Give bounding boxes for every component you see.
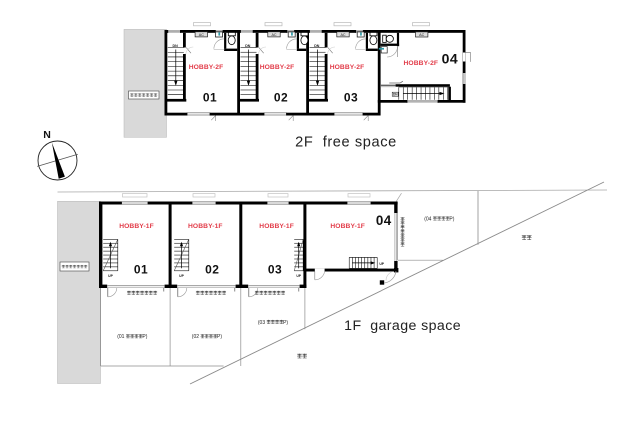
svg-text:UP: UP <box>108 274 113 278</box>
svg-text:HOBBY-1F: HOBBY-1F <box>330 223 365 230</box>
svg-text:(01: (01 <box>117 334 124 340</box>
svg-text:(04: (04 <box>424 216 431 222</box>
svg-text:AC: AC <box>271 33 276 37</box>
svg-text:AC: AC <box>419 33 424 37</box>
svg-text:P): P) <box>283 320 288 326</box>
svg-text:2F free space: 2F free space <box>295 135 397 151</box>
svg-text:HOBBY-1F: HOBBY-1F <box>119 223 154 230</box>
svg-text:HOBBY-2F: HOBBY-2F <box>189 64 224 71</box>
svg-text:02: 02 <box>205 262 219 276</box>
svg-text:AC: AC <box>340 33 345 37</box>
svg-text:UP: UP <box>379 262 384 266</box>
svg-text:UP: UP <box>296 274 301 278</box>
svg-text:1F garage space: 1F garage space <box>344 318 461 334</box>
svg-text:03: 03 <box>344 90 358 104</box>
svg-text:04: 04 <box>442 50 459 66</box>
svg-text:HOBBY-1F: HOBBY-1F <box>188 223 223 230</box>
svg-text:HOBBY-1F: HOBBY-1F <box>259 223 294 230</box>
svg-text:DN: DN <box>314 44 320 48</box>
svg-text:04: 04 <box>376 213 392 228</box>
svg-text:P): P) <box>217 334 222 340</box>
svg-text:(03: (03 <box>258 320 265 326</box>
svg-text:N: N <box>43 129 51 141</box>
svg-text:DN: DN <box>172 44 178 48</box>
svg-text:(02: (02 <box>192 334 199 340</box>
svg-text:DN: DN <box>245 44 251 48</box>
svg-text:03: 03 <box>268 262 282 276</box>
svg-text:HOBBY-2F: HOBBY-2F <box>403 60 438 67</box>
svg-text:DN: DN <box>393 92 398 96</box>
svg-text:01: 01 <box>203 90 217 104</box>
svg-text:HOBBY-2F: HOBBY-2F <box>260 64 295 71</box>
svg-text:UP: UP <box>179 274 184 278</box>
svg-text:P): P) <box>142 334 147 340</box>
svg-text:P): P) <box>449 216 454 222</box>
svg-text:02: 02 <box>274 90 288 104</box>
svg-text:AC: AC <box>199 33 204 37</box>
svg-text:HOBBY-2F: HOBBY-2F <box>330 64 365 71</box>
svg-text:01: 01 <box>134 262 148 276</box>
